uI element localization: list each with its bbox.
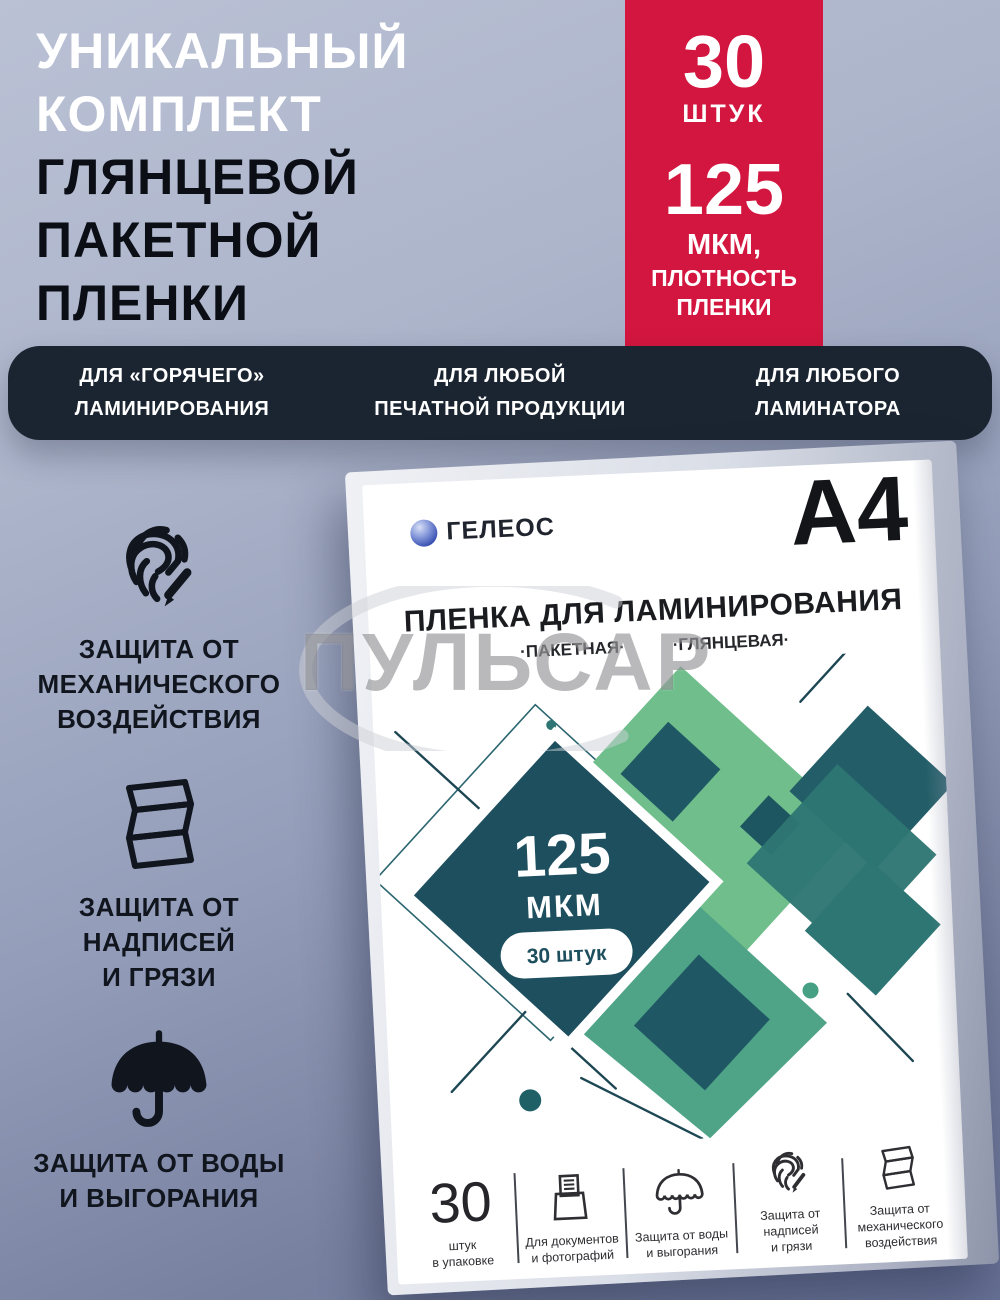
usp-item-any-laminator: ДЛЯ ЛЮБОГО ЛАМИНАТОРА — [664, 360, 992, 426]
fingerprint-pencil-icon — [26, 512, 292, 618]
feature-mechanical-protection: ЗАЩИТА ОТ МЕХАНИЧЕСКОГО ВОЗДЕЙСТВИЯ — [26, 512, 292, 737]
footer-cell-inscriptions: Защита от надписей и грязи — [733, 1140, 846, 1257]
headline-line: КОМПЛЕКТ — [36, 83, 408, 146]
footer-cell-label: Для документов и фотографий — [521, 1230, 624, 1267]
feature-label: ЗАЩИТА ОТ НАДПИСЕЙ И ГРЯЗИ — [26, 890, 292, 995]
brand-logo: ГЕЛЕОС — [410, 513, 556, 549]
package-front: ГЕЛЕОС A4 ПЛЕНКА ДЛЯ ЛАМИНИРОВАНИЯ ·ПАКЕ… — [362, 459, 968, 1284]
headline-line: ПЛЕНКИ — [36, 272, 408, 335]
feature-label: ЗАЩИТА ОТ МЕХАНИЧЕСКОГО ВОЗДЕЙСТВИЯ — [26, 632, 292, 737]
quantity-badge: 30 ШТУК 125 МКМ, ПЛОТНОСТЬ ПЛЕНКИ — [625, 0, 823, 348]
folded-film-icon — [846, 1135, 950, 1196]
usp-bar: ДЛЯ «ГОРЯЧЕГО» ЛАМИНИРОВАНИЯ ДЛЯ ЛЮБОЙ П… — [8, 346, 992, 440]
folded-film-icon — [26, 776, 292, 876]
footer-cell-label: Защита от надписей и грязи — [739, 1204, 843, 1257]
paper-format-label: A4 — [788, 457, 910, 567]
fingerprint-icon — [736, 1140, 840, 1201]
feature-water-protection: ЗАЩИТА ОТ ВОДЫ И ВЫГОРАНИЯ — [8, 1028, 310, 1216]
headline-line: УНИКАЛЬНЫЙ — [36, 20, 408, 83]
feature-label: ЗАЩИТА ОТ ВОДЫ И ВЫГОРАНИЯ — [8, 1146, 310, 1216]
umbrella-icon — [8, 1028, 310, 1132]
brand-name: ГЕЛЕОС — [446, 513, 556, 547]
feature-inscriptions-protection: ЗАЩИТА ОТ НАДПИСЕЙ И ГРЯЗИ — [26, 776, 292, 995]
headline-line: ПАКЕТНОЙ — [36, 209, 408, 272]
package-artwork: 125 МКМ 30 штук — [371, 649, 962, 1152]
umbrella-icon — [627, 1161, 731, 1222]
product-banner: УНИКАЛЬНЫЙ КОМПЛЕКТ ГЛЯНЦЕВОЙ ПАКЕТНОЙ П… — [0, 0, 1000, 1300]
badge-count: 30 — [625, 26, 823, 98]
count-pill-label: 30 штук — [526, 942, 607, 969]
footer-cell-water: Защита от воды и выгорания — [624, 1161, 736, 1262]
usp-item-hot-lamination: ДЛЯ «ГОРЯЧЕГО» ЛАМИНИРОВАНИЯ — [8, 360, 336, 426]
badge-micron-label: ПЛОТНОСТЬ ПЛЕНКИ — [625, 264, 823, 322]
package-footer: 30 штук в упаковке Для документов и фото… — [405, 1131, 956, 1272]
art-micron-value: 125 — [512, 820, 612, 889]
footer-cell-count: 30 штук в упаковке — [406, 1173, 518, 1272]
subtitle-pocket: ·ПАКЕТНАЯ· — [520, 638, 626, 663]
main-headline: УНИКАЛЬНЫЙ КОМПЛЕКТ ГЛЯНЦЕВОЙ ПАКЕТНОЙ П… — [36, 20, 408, 335]
headline-line: ГЛЯНЦЕВОЙ — [36, 146, 408, 209]
footer-cell-label: Защита от механического воздействия — [849, 1199, 953, 1252]
badge-count-unit: ШТУК — [625, 100, 823, 129]
badge-micron-value: 125 — [625, 155, 823, 225]
footer-cell-mechanical: Защита от механического воздействия — [843, 1135, 956, 1252]
brand-sphere-icon — [410, 519, 438, 547]
footer-cell-label: Защита от воды и выгорания — [630, 1225, 733, 1262]
subtitle-glossy: ·ГЛЯНЦЕВАЯ· — [672, 630, 789, 655]
printer-icon — [518, 1166, 622, 1227]
usp-item-any-print: ДЛЯ ЛЮБОЙ ПЕЧАТНОЙ ПРОДУКЦИИ — [336, 360, 664, 426]
footer-cell-label: штук в упаковке — [411, 1235, 514, 1272]
footer-count-value: 30 — [409, 1173, 513, 1232]
art-micron-unit: МКМ — [525, 887, 603, 925]
footer-cell-documents: Для документов и фотографий — [515, 1166, 627, 1267]
badge-micron-unit: МКМ, — [625, 229, 823, 262]
